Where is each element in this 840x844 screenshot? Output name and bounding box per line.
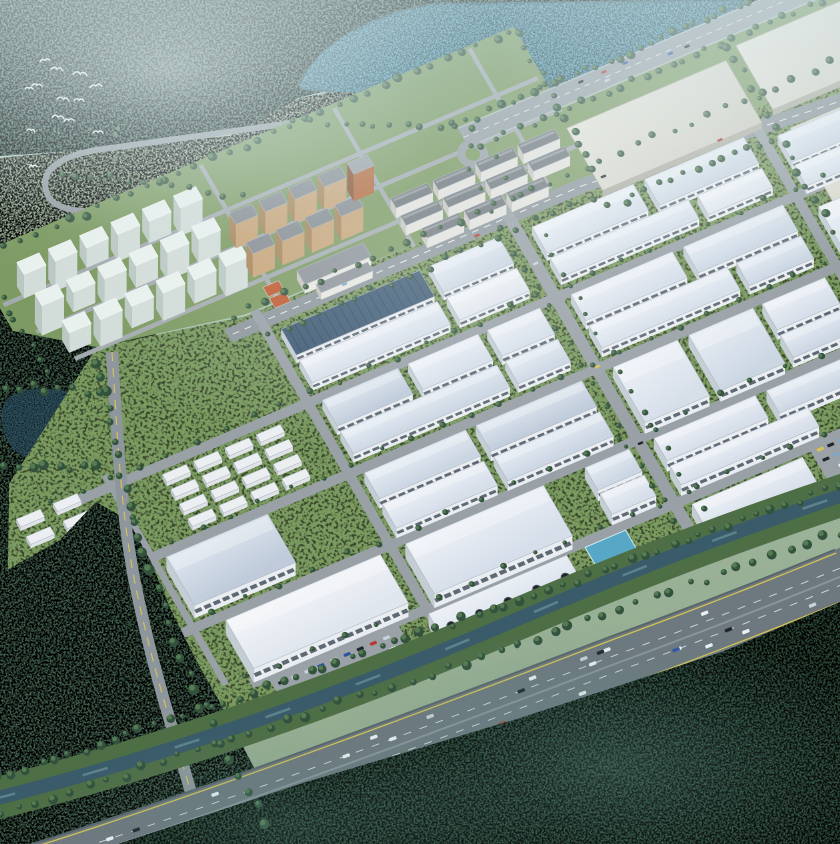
aerial-rendering-stage: [0, 0, 840, 844]
industrial-park-aerial-rendering: [0, 0, 840, 844]
atmospheric-haze: [0, 0, 840, 844]
